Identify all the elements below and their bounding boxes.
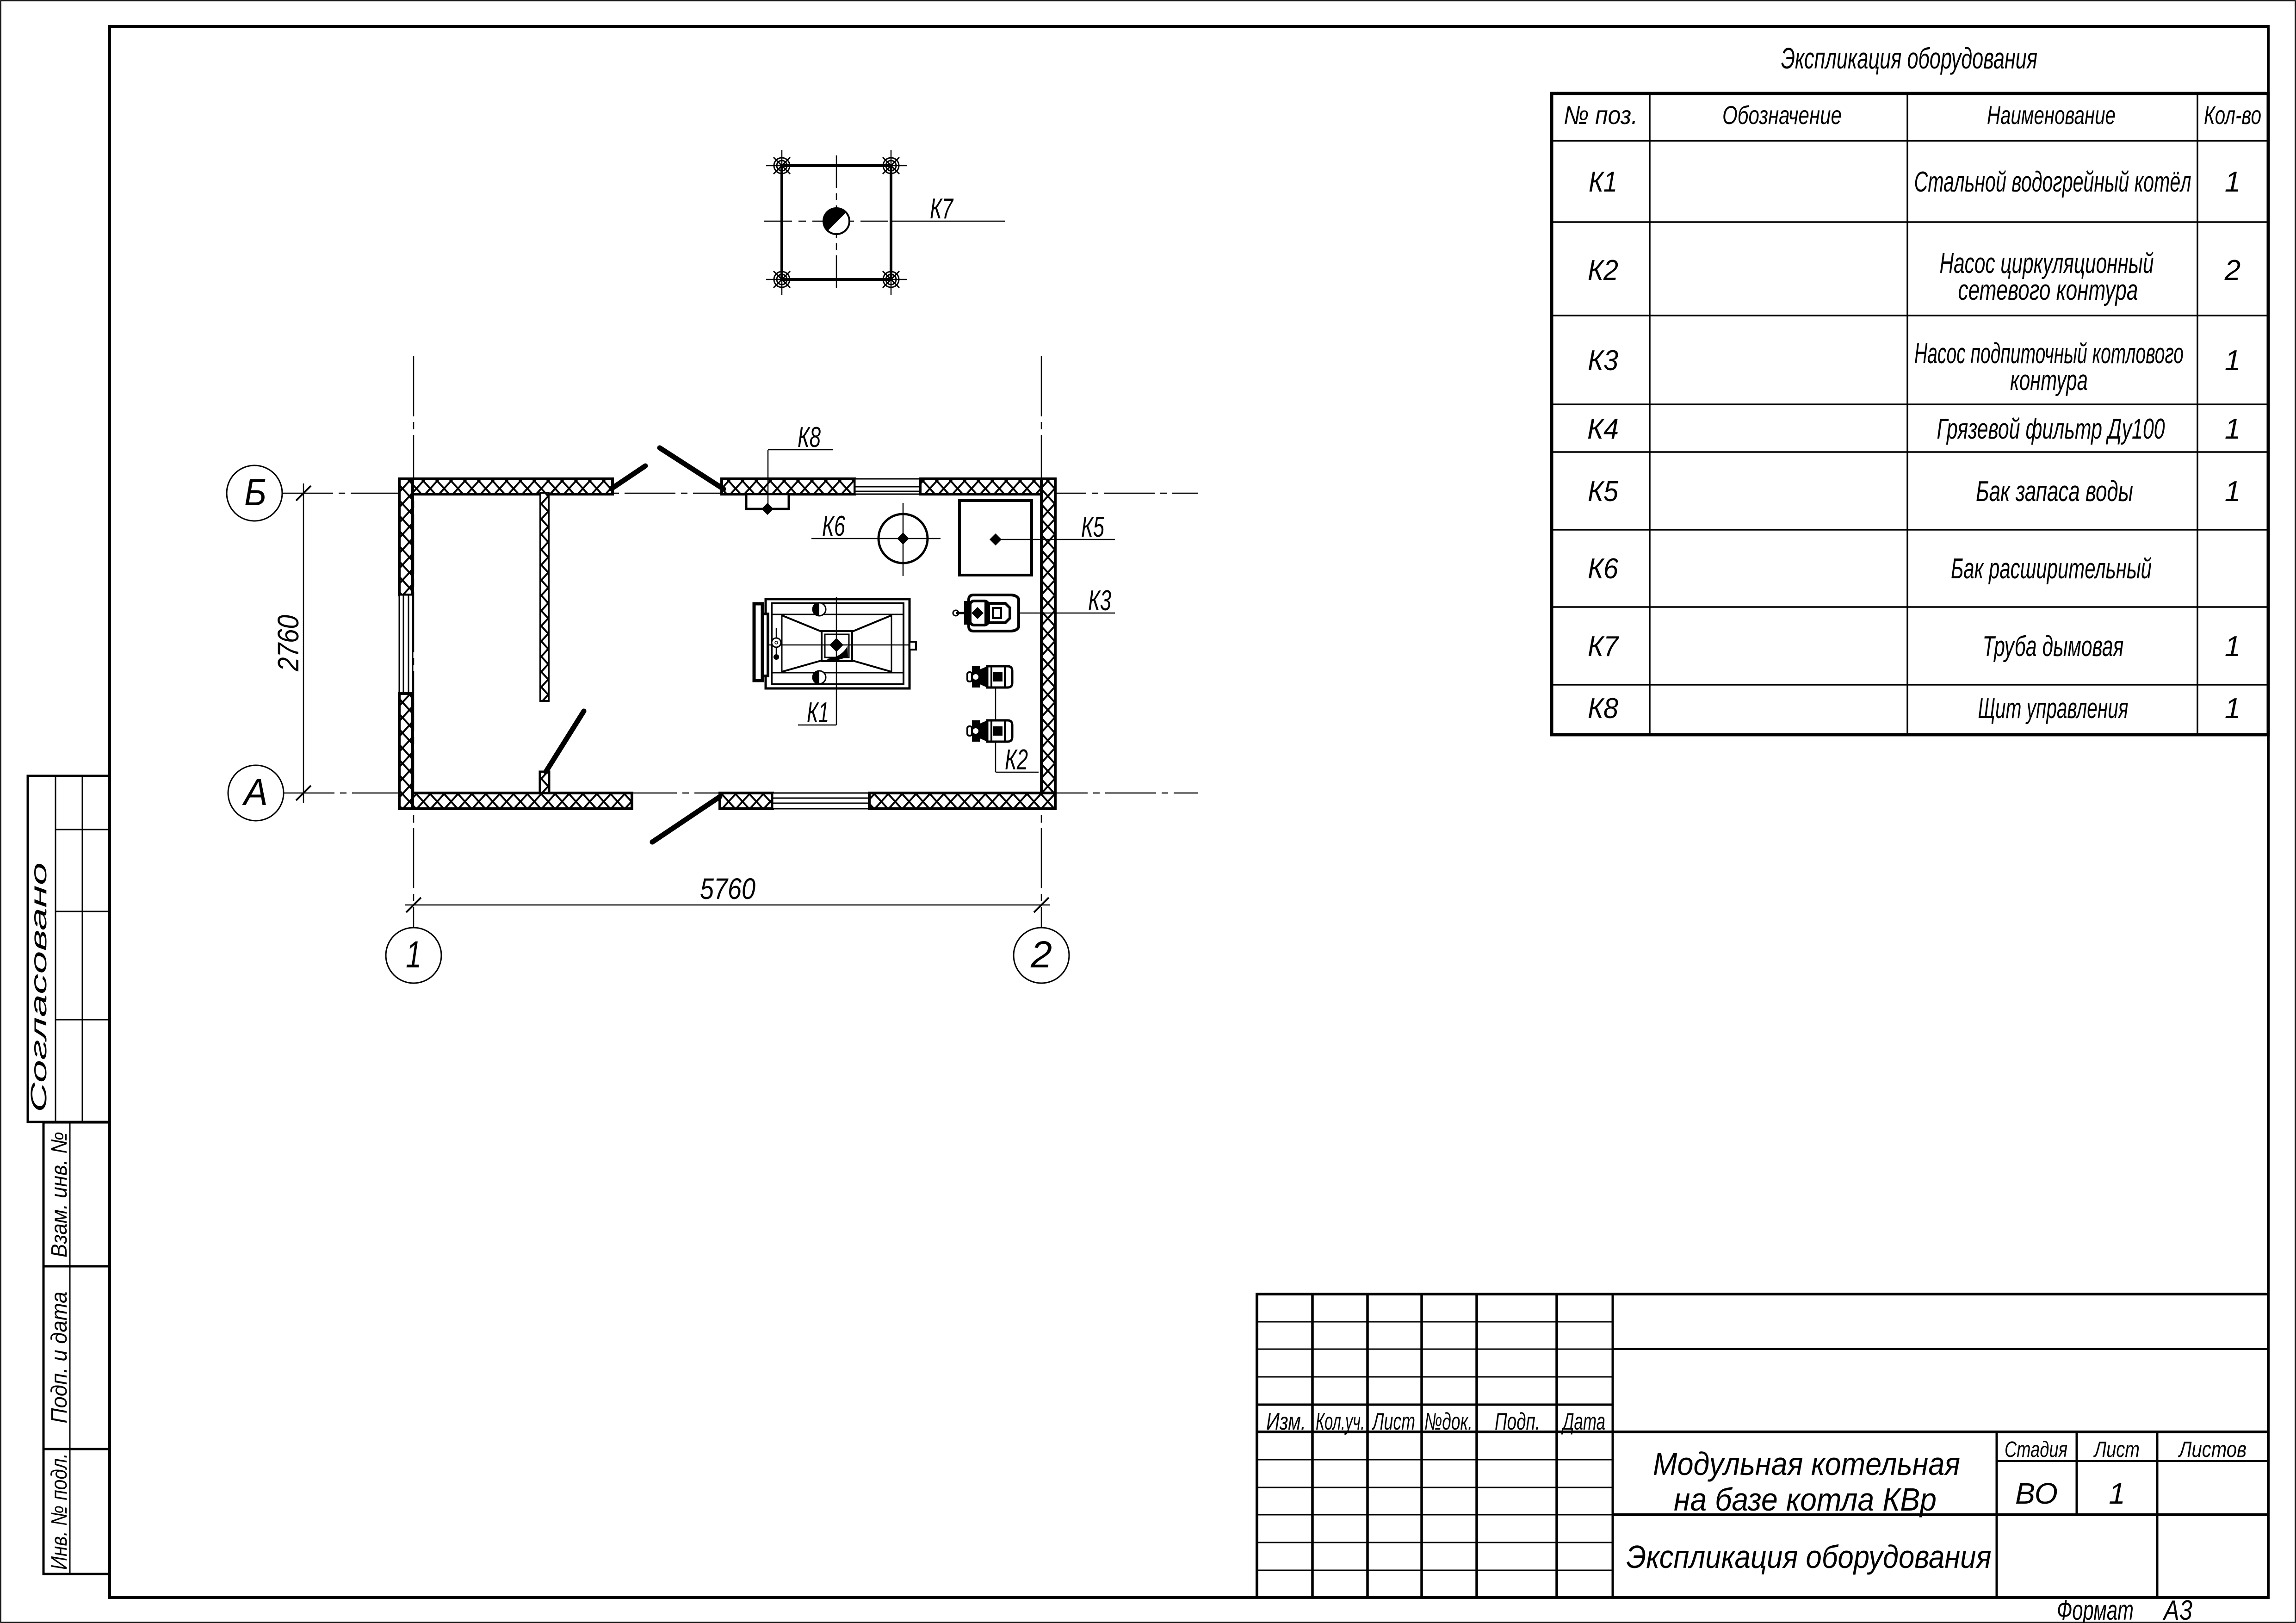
- svg-text:Модульная котельная: Модульная котельная: [1653, 1446, 1960, 1482]
- svg-text:Листов: Листов: [2178, 1437, 2246, 1462]
- svg-text:Согласовано: Согласовано: [27, 862, 51, 1112]
- svg-text:ВО: ВО: [2015, 1477, 2058, 1510]
- svg-text:5760: 5760: [700, 872, 755, 905]
- svg-text:Кол-во: Кол-во: [2204, 100, 2261, 130]
- svg-text:К7: К7: [1588, 631, 1619, 663]
- svg-text:1: 1: [2225, 166, 2240, 198]
- svg-text:сетевого контура: сетевого контура: [1958, 274, 2138, 306]
- svg-text:2760: 2760: [272, 615, 305, 672]
- svg-text:Инв. № подл.: Инв. № подл.: [47, 1453, 72, 1570]
- svg-text:К6: К6: [1588, 553, 1618, 585]
- svg-text:Наименование: Наименование: [1987, 100, 2116, 130]
- svg-text:К4: К4: [1587, 413, 1619, 445]
- svg-text:2: 2: [1030, 934, 1052, 976]
- svg-text:Щит управления: Щит управления: [1978, 693, 2129, 725]
- svg-text:Формат: Формат: [2057, 1595, 2134, 1623]
- svg-text:Лист: Лист: [2093, 1437, 2140, 1462]
- svg-text:1: 1: [2225, 631, 2240, 663]
- svg-text:Б: Б: [244, 471, 266, 514]
- svg-text:Подп. и дата: Подп. и дата: [47, 1292, 72, 1424]
- svg-text:К1: К1: [807, 697, 829, 729]
- svg-text:2: 2: [2224, 254, 2240, 286]
- svg-text:1: 1: [2225, 476, 2240, 508]
- svg-text:А: А: [241, 771, 268, 813]
- svg-text:1: 1: [2225, 345, 2240, 377]
- svg-text:К2: К2: [1005, 744, 1028, 776]
- svg-text:К1: К1: [1589, 166, 1617, 198]
- svg-text:А3: А3: [2162, 1595, 2192, 1623]
- svg-text:Стадия: Стадия: [2005, 1437, 2067, 1462]
- svg-text:1: 1: [406, 934, 421, 976]
- svg-text:на базе котла КВр: на базе котла КВр: [1674, 1481, 1937, 1518]
- svg-text:К6: К6: [822, 510, 845, 542]
- svg-text:1: 1: [2109, 1477, 2125, 1510]
- svg-text:Экспликация оборудования: Экспликация оборудования: [1781, 42, 2037, 75]
- svg-text:К2: К2: [1588, 254, 1618, 286]
- svg-text:К5: К5: [1588, 476, 1618, 508]
- svg-text:Бак запаса воды: Бак запаса воды: [1976, 476, 2133, 508]
- svg-text:1: 1: [2225, 693, 2240, 725]
- svg-text:Стальной водогрейный котёл: Стальной водогрейный котёл: [1914, 166, 2191, 198]
- svg-text:Бак расширительный: Бак расширительный: [1951, 553, 2152, 585]
- svg-text:1: 1: [2225, 413, 2240, 445]
- svg-text:Обозначение: Обозначение: [1722, 100, 1842, 130]
- svg-text:контура: контура: [2010, 365, 2088, 396]
- svg-text:К5: К5: [1081, 511, 1104, 543]
- svg-text:К3: К3: [1588, 345, 1618, 377]
- svg-text:Грязевой фильтр Ду100: Грязевой фильтр Ду100: [1937, 413, 2165, 445]
- svg-text:Экспликация оборудования: Экспликация оборудования: [1627, 1539, 1992, 1575]
- svg-text:К8: К8: [1588, 693, 1618, 725]
- svg-text:№ поз.: № поз.: [1564, 100, 1638, 130]
- svg-text:Взам. инв. №: Взам. инв. №: [47, 1132, 72, 1258]
- svg-text:Труба дымовая: Труба дымовая: [1983, 631, 2124, 663]
- svg-text:К7: К7: [930, 193, 954, 225]
- svg-text:К8: К8: [798, 421, 821, 453]
- svg-text:К3: К3: [1088, 585, 1111, 617]
